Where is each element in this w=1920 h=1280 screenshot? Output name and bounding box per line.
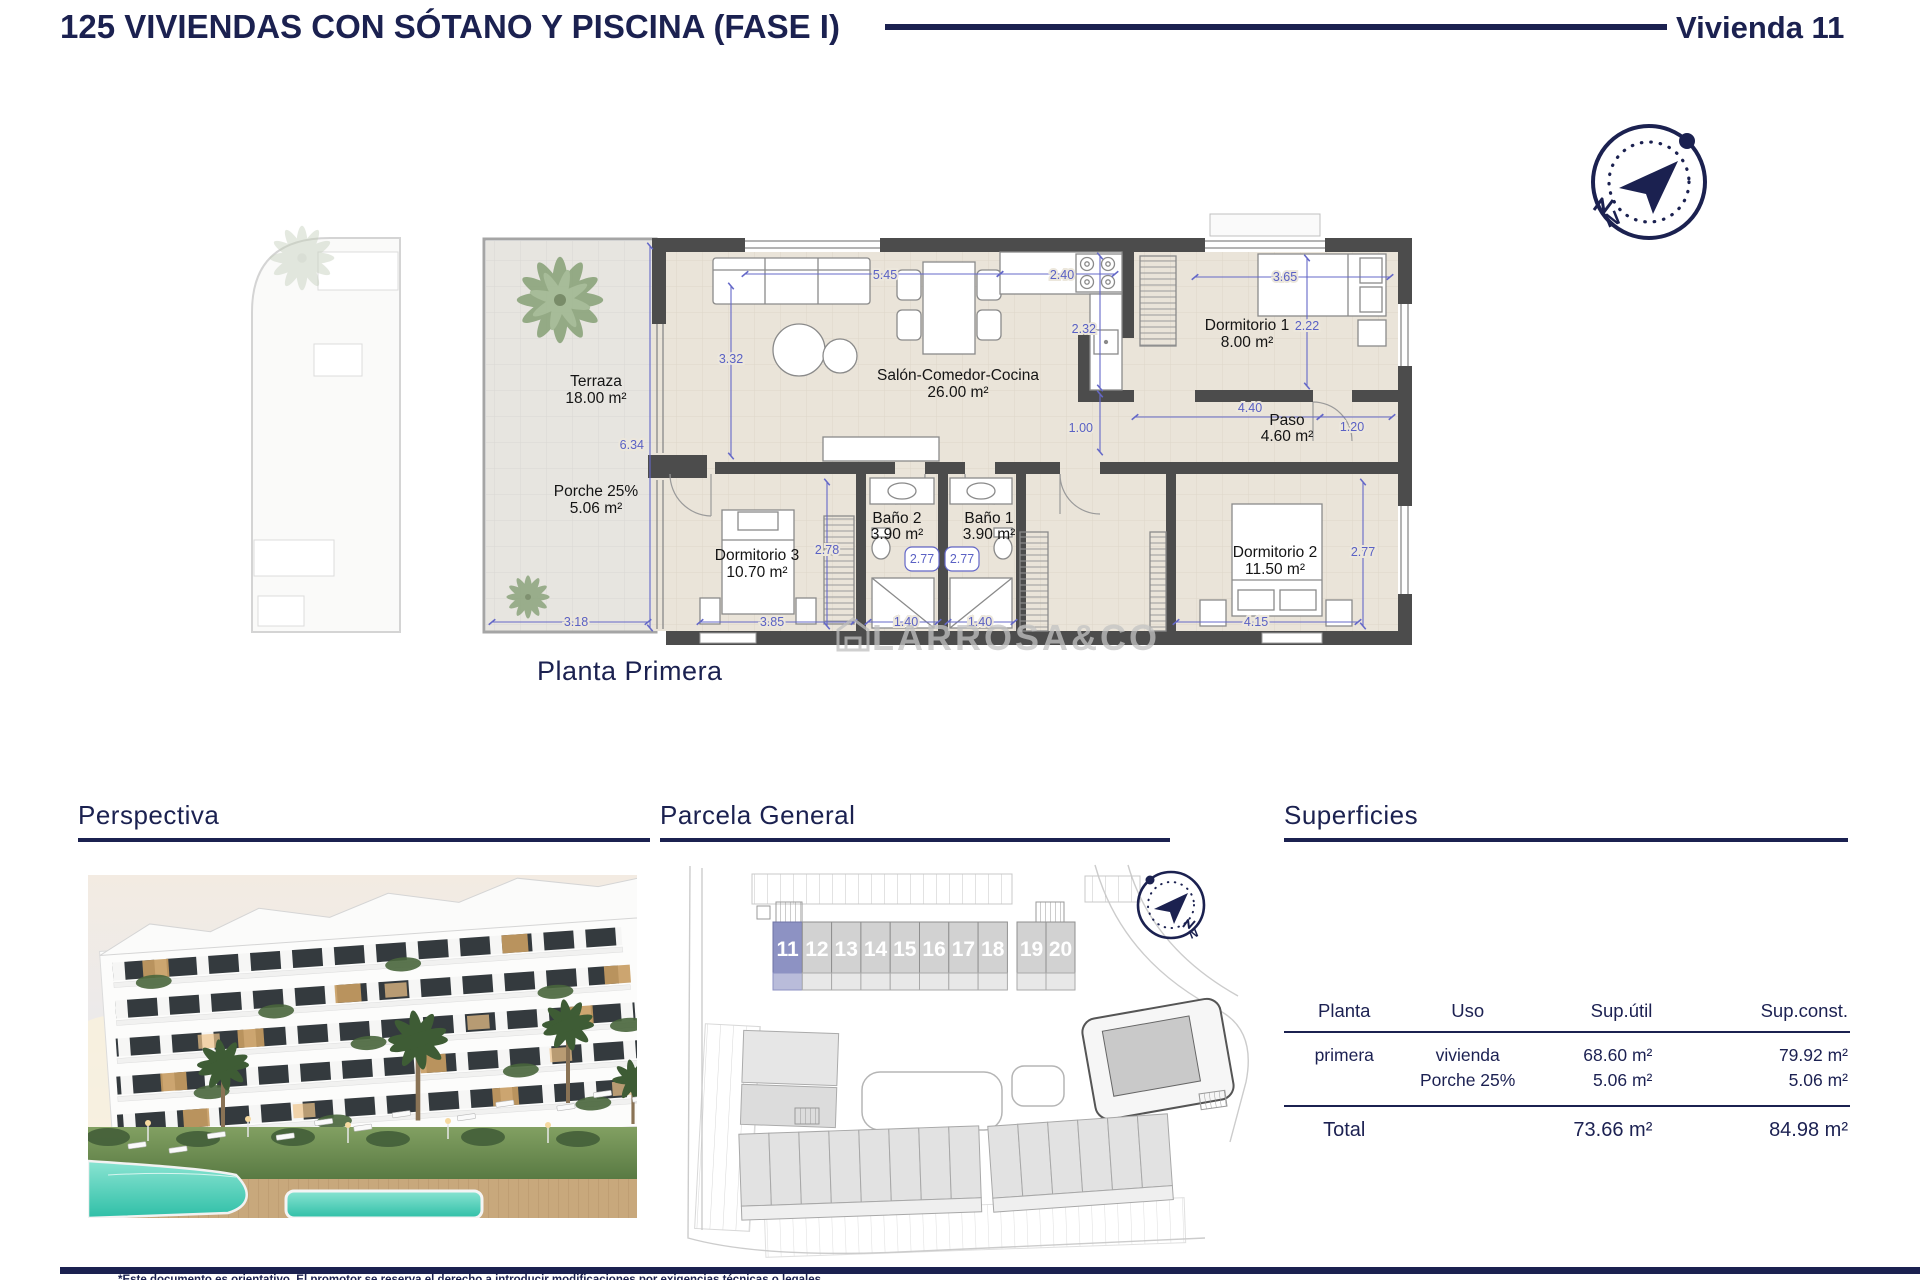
unit-number: 16 bbox=[922, 938, 945, 961]
cell-total-label: Total bbox=[1284, 1106, 1405, 1144]
unit-number: 17 bbox=[952, 938, 975, 961]
unit-number: 12 bbox=[805, 938, 828, 961]
watermark: LARROSA&CO bbox=[838, 617, 1160, 658]
pool-center bbox=[286, 1191, 482, 1218]
cell-total-sup-const: 84.98 m² bbox=[1654, 1106, 1850, 1144]
wardrobe-dorm3 bbox=[824, 516, 854, 624]
table-header-row: Planta Uso Sup.útil Sup.const. bbox=[1284, 998, 1850, 1032]
perspective-render bbox=[88, 875, 637, 1218]
floorplan: 5.45 2.40 3.65 2.32 2.22 3.32 6.34 4.40 … bbox=[235, 190, 1420, 662]
coffee-table bbox=[773, 324, 825, 376]
room-label: Terraza bbox=[570, 373, 622, 390]
cell-sup-util: 5.06 m² bbox=[1531, 1068, 1655, 1093]
stairs-icon bbox=[776, 902, 802, 922]
plan-caption: Planta Primera bbox=[537, 656, 723, 687]
dim-label: 6.34 bbox=[620, 438, 644, 452]
dim-label: 1.00 bbox=[1069, 421, 1093, 435]
unit-number: 13 bbox=[835, 938, 858, 961]
dim-label: 1.20 bbox=[1340, 420, 1364, 434]
table-total-row: Total 73.66 m² 84.98 m² bbox=[1284, 1106, 1850, 1144]
cell-sup-const: 5.06 m² bbox=[1654, 1068, 1850, 1093]
plan-sheet: 125 VIVIENDAS CON SÓTANO Y PISCINA (FASE… bbox=[0, 0, 1920, 1280]
dim-label: 2.77 bbox=[910, 552, 934, 566]
table-row: Porche 25% 5.06 m² 5.06 m² bbox=[1284, 1068, 1850, 1093]
title-rule bbox=[885, 24, 1667, 30]
dim-label: 2.77 bbox=[950, 552, 974, 566]
sideboard bbox=[823, 437, 939, 461]
footer-rule bbox=[60, 1267, 1920, 1274]
dim-label: 2.32 bbox=[1072, 322, 1096, 336]
table-row: primera vivienda 68.60 m² 79.92 m² bbox=[1284, 1032, 1850, 1068]
room-label: Baño 1 bbox=[964, 510, 1013, 527]
page-title: 125 VIVIENDAS CON SÓTANO Y PISCINA (FASE… bbox=[60, 8, 840, 46]
unit-number: 14 bbox=[864, 938, 888, 961]
dim-label: 4.15 bbox=[1244, 615, 1268, 629]
dim-label: 2.22 bbox=[1295, 319, 1319, 333]
dim-label: 2.77 bbox=[1351, 545, 1375, 559]
compass-north-icon: N bbox=[1578, 104, 1724, 256]
room-area: 5.06 m² bbox=[570, 500, 623, 517]
cell-uso: Porche 25% bbox=[1405, 1068, 1531, 1093]
cell-total-sup-util: 73.66 m² bbox=[1531, 1106, 1655, 1144]
cell-planta: primera bbox=[1284, 1032, 1405, 1068]
col-header-planta: Planta bbox=[1284, 998, 1405, 1032]
unit-number: 18 bbox=[981, 938, 1005, 961]
section-rule bbox=[78, 838, 650, 842]
siteplan: 11 12 13 14 15 16 17 18 19 20 bbox=[660, 860, 1260, 1265]
room-area: 8.00 m² bbox=[1221, 334, 1274, 351]
dim-label: 3.85 bbox=[760, 615, 784, 629]
room-area: 11.50 m² bbox=[1245, 561, 1305, 578]
section-rule bbox=[1284, 838, 1848, 842]
footer-disclaimer: *Este documento es orientativo. El promo… bbox=[118, 1274, 824, 1280]
cell-uso: vivienda bbox=[1405, 1032, 1531, 1068]
wardrobe-dorm1 bbox=[1140, 256, 1176, 346]
section-title-parcela: Parcela General bbox=[660, 800, 855, 831]
room-label: Dormitorio 3 bbox=[715, 547, 799, 564]
superficies-table: Planta Uso Sup.útil Sup.const. primera v… bbox=[1284, 998, 1850, 1144]
dim-label: 2.78 bbox=[815, 543, 839, 557]
room-label: Baño 2 bbox=[872, 510, 921, 527]
dim-label: 3.18 bbox=[564, 615, 588, 629]
dim-label: 4.40 bbox=[1238, 401, 1262, 415]
parking-row bbox=[752, 874, 1012, 904]
site-buildings bbox=[739, 997, 1236, 1221]
room-area: 26.00 m² bbox=[927, 384, 988, 401]
col-header-uso: Uso bbox=[1405, 998, 1531, 1032]
dim-label: 5.45 bbox=[873, 268, 897, 282]
svg-text:N: N bbox=[1187, 926, 1200, 942]
room-area: 10.70 m² bbox=[726, 564, 787, 581]
cell-planta bbox=[1284, 1068, 1405, 1093]
stove bbox=[1076, 254, 1122, 292]
sofa bbox=[713, 258, 870, 304]
unit-numbers: 11 12 13 14 15 16 17 18 19 20 bbox=[776, 938, 1072, 961]
unit-row: 11 12 13 14 15 16 17 18 19 20 bbox=[757, 902, 1075, 990]
col-header-sup-const: Sup.const. bbox=[1654, 998, 1850, 1032]
window-bottom-2 bbox=[1262, 633, 1322, 643]
room-area: 18.00 m² bbox=[565, 390, 626, 407]
unit-number: 19 bbox=[1020, 938, 1043, 961]
col-header-sup-util: Sup.útil bbox=[1531, 998, 1655, 1032]
room-area: 4.60 m² bbox=[1261, 428, 1314, 445]
side-table bbox=[823, 339, 857, 373]
watermark-text: LARROSA&CO bbox=[872, 617, 1160, 658]
room-label: Salón-Comedor-Cocina bbox=[877, 367, 1039, 384]
room-label: Paso bbox=[1269, 412, 1304, 429]
section-title-superficies: Superficies bbox=[1284, 800, 1418, 831]
room-label: Dormitorio 1 bbox=[1205, 317, 1289, 334]
room-label: Dormitorio 2 bbox=[1233, 544, 1317, 561]
dim-label: 3.65 bbox=[1273, 270, 1297, 284]
section-rule bbox=[660, 838, 1170, 842]
neighbour-unit-outline bbox=[252, 226, 400, 632]
section-title-perspectiva: Perspectiva bbox=[78, 800, 219, 831]
stairs-icon bbox=[1036, 902, 1064, 922]
room-area: 3.90 m² bbox=[871, 526, 924, 543]
compass-north-icon: N bbox=[1138, 872, 1204, 942]
cell-sup-util: 68.60 m² bbox=[1531, 1032, 1655, 1068]
room-label: Porche 25% bbox=[554, 483, 639, 500]
unit-label: Vivienda 11 bbox=[1676, 10, 1844, 46]
parking-row bbox=[1085, 876, 1140, 902]
window-bottom-1 bbox=[700, 633, 756, 643]
site-pool bbox=[862, 1072, 1002, 1130]
dim-label: 3.32 bbox=[719, 352, 743, 366]
unit-number: 15 bbox=[893, 938, 917, 961]
balcony-sill bbox=[1210, 214, 1320, 236]
cell-sup-const: 79.92 m² bbox=[1654, 1032, 1850, 1068]
unit-number-11: 11 bbox=[776, 938, 799, 961]
room-area: 3.90 m² bbox=[963, 526, 1016, 543]
unit-number: 20 bbox=[1049, 938, 1072, 961]
dim-label: 2.40 bbox=[1050, 268, 1074, 282]
